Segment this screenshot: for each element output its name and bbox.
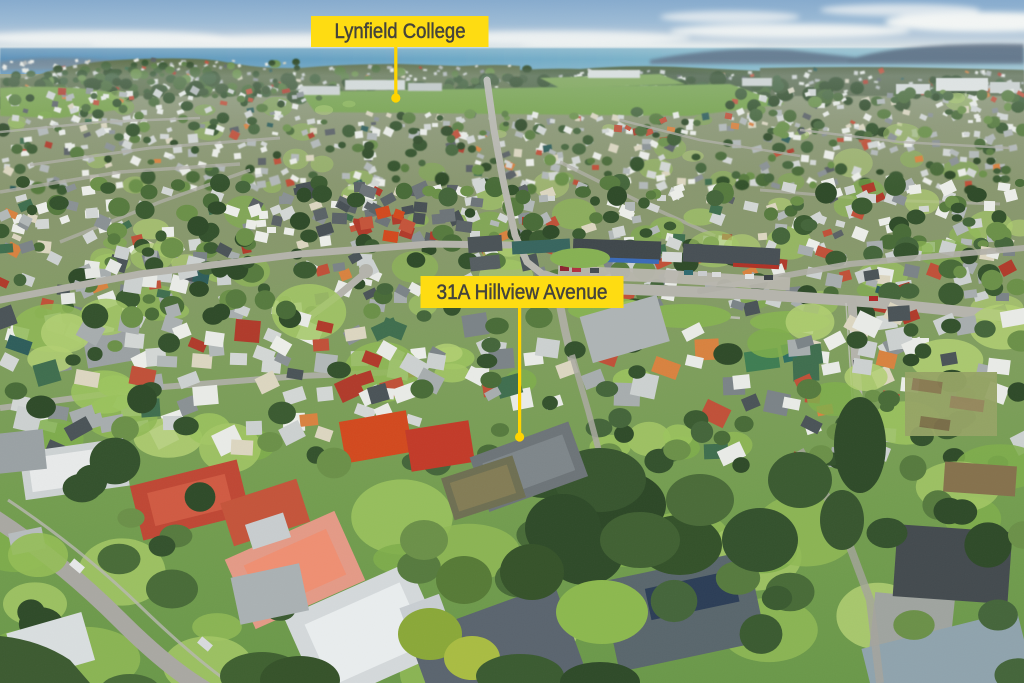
svg-text:31A Hillview Avenue: 31A Hillview Avenue (437, 280, 608, 304)
svg-text:Lynfield College: Lynfield College (335, 19, 466, 43)
